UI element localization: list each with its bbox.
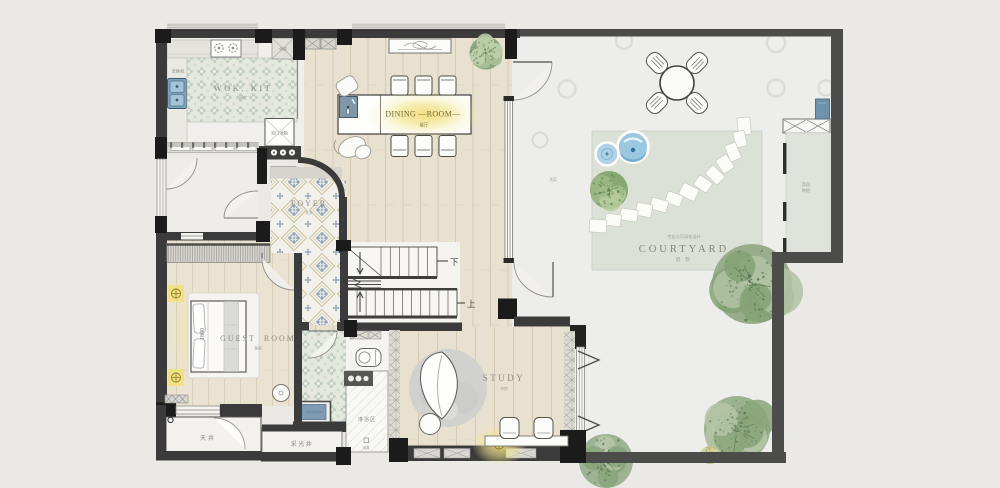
svg-text:下: 下	[450, 257, 459, 267]
svg-text:GUEST ROOM: GUEST ROOM	[220, 334, 296, 343]
svg-text:种植: 种植	[802, 187, 810, 193]
svg-text:玄关: 玄关	[305, 210, 313, 215]
svg-text:客房: 客房	[254, 346, 262, 351]
svg-text:1800: 1800	[200, 328, 206, 340]
svg-text:淋浴区: 淋浴区	[358, 416, 376, 423]
svg-text:书房: 书房	[500, 385, 508, 391]
svg-text:DINING —ROOM—: DINING —ROOM—	[385, 110, 461, 119]
svg-text:洗菜: 洗菜	[549, 177, 557, 182]
svg-text:天井: 天井	[200, 434, 216, 442]
svg-text:FOYER: FOYER	[291, 199, 327, 208]
svg-text:COURTYARD: COURTYARD	[639, 244, 730, 255]
svg-text:厨房: 厨房	[239, 94, 247, 100]
svg-text:上: 上	[467, 299, 476, 309]
svg-text:庭 院: 庭 院	[676, 256, 692, 263]
svg-text:洗碗机: 洗碗机	[172, 68, 185, 75]
svg-text:地漏: 地漏	[363, 445, 369, 450]
svg-text:菜园: 菜园	[802, 181, 810, 187]
svg-text:传菜: 传菜	[279, 47, 287, 52]
svg-text:餐厅: 餐厅	[420, 122, 429, 129]
svg-text:双门冰箱: 双门冰箱	[271, 130, 288, 137]
svg-text:采光井: 采光井	[291, 440, 314, 448]
svg-text:WOK. KIT: WOK. KIT	[214, 83, 273, 93]
svg-text:专业公司深化设计: 专业公司深化设计	[667, 233, 701, 240]
svg-text:STUDY: STUDY	[483, 373, 526, 383]
